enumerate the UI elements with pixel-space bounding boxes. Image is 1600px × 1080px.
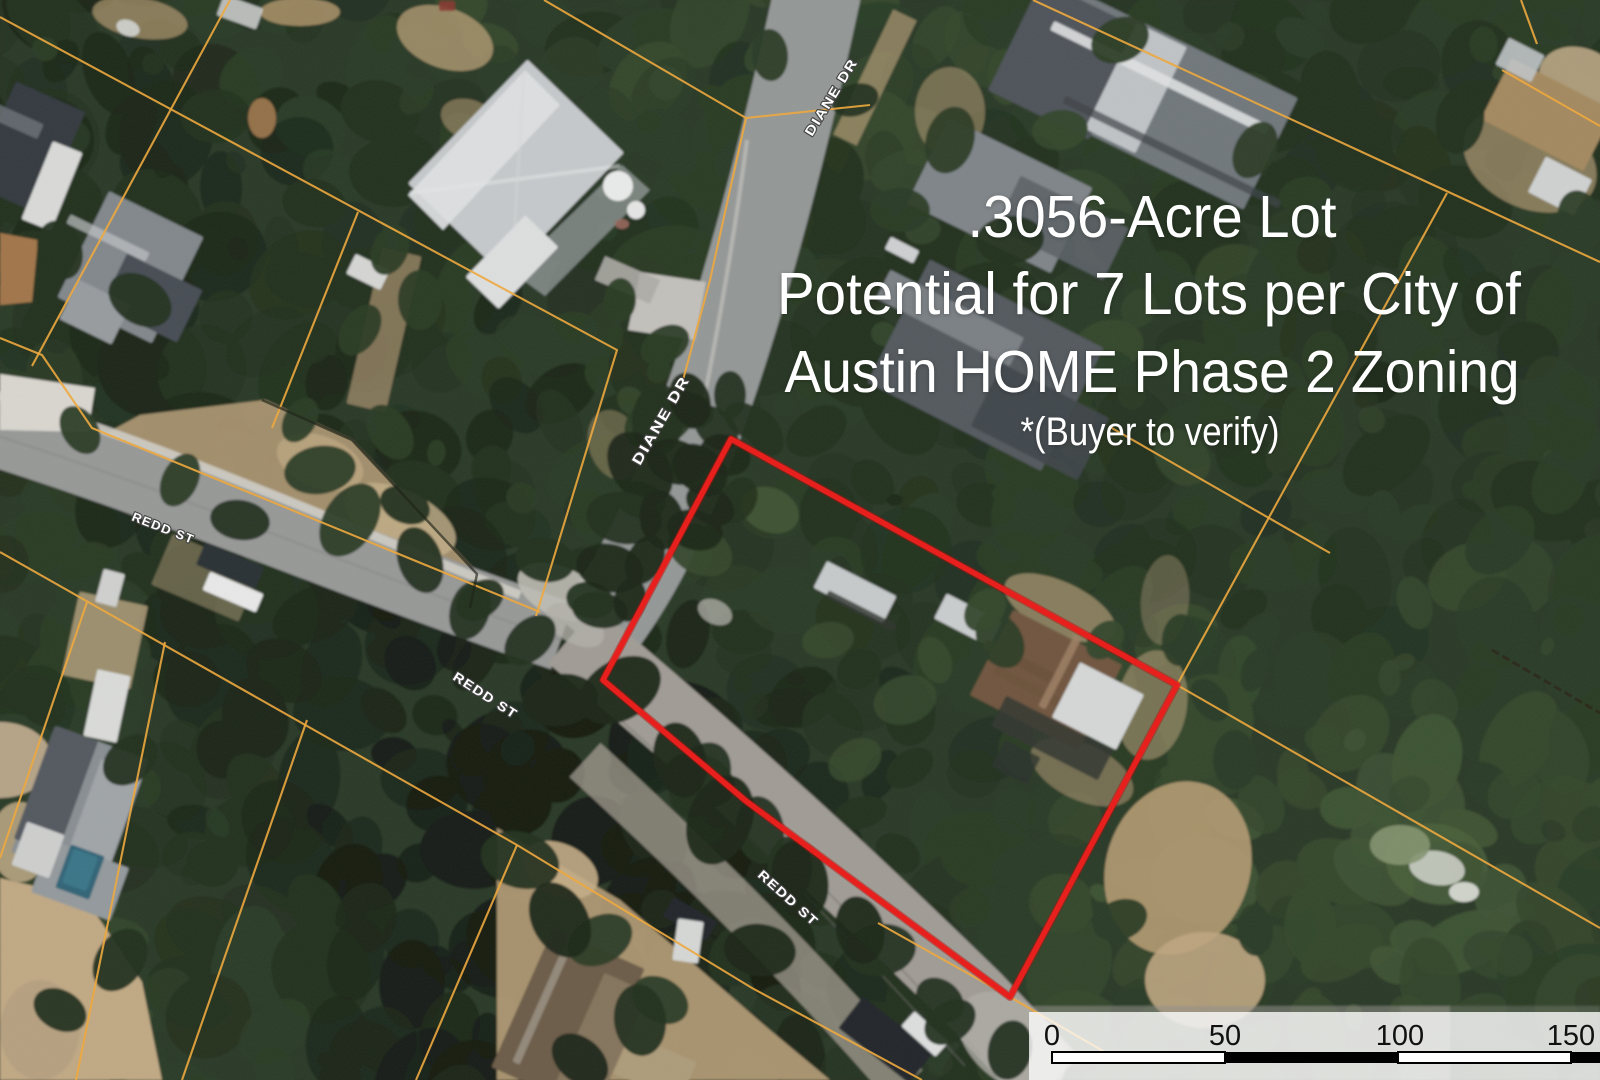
svg-text:Austin HOME Phase 2 Zoning: Austin HOME Phase 2 Zoning bbox=[785, 339, 1520, 405]
svg-text:*(Buyer to verify): *(Buyer to verify) bbox=[1021, 410, 1280, 454]
svg-text:Potential for 7 Lots per City: Potential for 7 Lots per City of bbox=[777, 261, 1522, 327]
svg-text:150: 150 bbox=[1547, 1020, 1595, 1052]
svg-text:0: 0 bbox=[1044, 1020, 1060, 1052]
svg-text:.3056-Acre Lot: .3056-Acre Lot bbox=[968, 184, 1337, 250]
svg-text:50: 50 bbox=[1209, 1020, 1241, 1052]
svg-text:100: 100 bbox=[1376, 1020, 1424, 1052]
